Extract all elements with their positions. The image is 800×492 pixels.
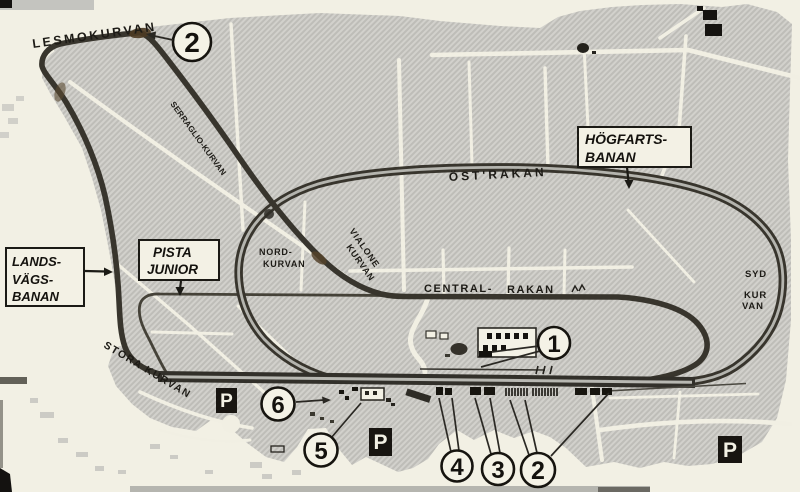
svg-text:P: P — [373, 431, 387, 454]
svg-text:KUR: KUR — [744, 290, 767, 301]
svg-text:VAN: VAN — [742, 301, 764, 312]
svg-text:NORD-: NORD- — [259, 247, 293, 257]
svg-text:1: 1 — [547, 331, 560, 358]
svg-text:LANDS-: LANDS- — [12, 254, 61, 269]
svg-text:CENTRAL-: CENTRAL- — [424, 283, 493, 295]
svg-text:P: P — [220, 391, 233, 412]
svg-text:RAKAN: RAKAN — [507, 284, 555, 296]
svg-text:6: 6 — [271, 392, 284, 419]
svg-text:VÄGS-: VÄGS- — [12, 272, 53, 287]
svg-text:P: P — [723, 439, 737, 462]
svg-text:KURVAN: KURVAN — [263, 259, 305, 269]
svg-text:BANAN: BANAN — [585, 149, 636, 165]
svg-text:JUNIOR: JUNIOR — [147, 262, 198, 277]
svg-text:BANAN: BANAN — [12, 289, 60, 304]
svg-text:SYD: SYD — [745, 269, 767, 280]
svg-text:5: 5 — [314, 438, 327, 465]
svg-text:HÖGFARTS-: HÖGFARTS- — [585, 131, 668, 147]
svg-text:2: 2 — [531, 457, 545, 485]
svg-text:3: 3 — [491, 457, 504, 484]
svg-text:PISTA: PISTA — [153, 245, 192, 260]
svg-text:2: 2 — [184, 27, 200, 58]
svg-text:4: 4 — [450, 454, 464, 481]
